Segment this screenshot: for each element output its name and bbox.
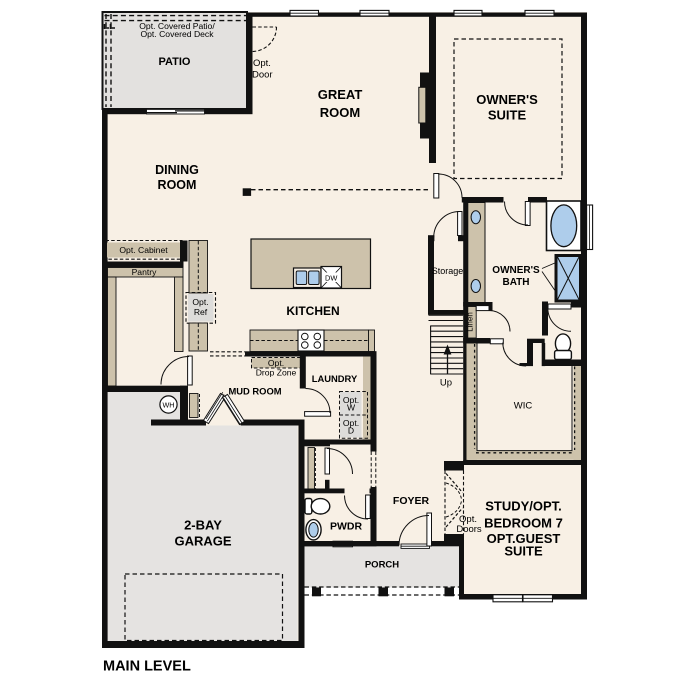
svg-text:BEDROOM 7: BEDROOM 7 (484, 516, 563, 531)
svg-text:D: D (348, 426, 354, 436)
svg-text:BATH: BATH (502, 277, 529, 288)
svg-text:SUITE: SUITE (504, 544, 543, 559)
svg-text:Storage: Storage (432, 266, 464, 276)
svg-text:Linen: Linen (465, 312, 474, 332)
svg-text:Opt.: Opt. (268, 358, 284, 368)
svg-text:ROOM: ROOM (158, 178, 197, 192)
svg-text:MAIN LEVEL: MAIN LEVEL (103, 659, 191, 675)
svg-text:GARAGE: GARAGE (174, 534, 231, 549)
svg-text:STUDY/OPT.: STUDY/OPT. (485, 499, 562, 514)
svg-text:DW: DW (325, 274, 337, 283)
svg-text:MUD ROOM: MUD ROOM (228, 386, 281, 397)
svg-text:Pantry: Pantry (132, 267, 158, 277)
svg-text:Up: Up (440, 378, 452, 389)
svg-text:OWNER'S: OWNER'S (476, 92, 538, 107)
svg-text:Opt.: Opt. (192, 297, 208, 307)
svg-text:Doors: Doors (456, 524, 482, 535)
svg-text:2-BAY: 2-BAY (184, 518, 222, 533)
svg-text:PATIO: PATIO (159, 56, 191, 68)
svg-text:Opt. Cabinet: Opt. Cabinet (119, 245, 168, 255)
svg-text:Ref: Ref (194, 307, 208, 317)
svg-text:PORCH: PORCH (365, 560, 399, 571)
svg-text:PWDR: PWDR (330, 521, 362, 533)
svg-text:DINING: DINING (155, 163, 199, 177)
svg-text:SUITE: SUITE (488, 108, 527, 123)
svg-text:Drop Zone: Drop Zone (256, 368, 297, 378)
svg-text:LAUNDRY: LAUNDRY (312, 373, 358, 384)
svg-text:GREAT: GREAT (318, 87, 363, 102)
svg-text:WIC: WIC (514, 401, 533, 412)
svg-text:ROOM: ROOM (320, 105, 360, 120)
svg-text:Opt. Covered Deck: Opt. Covered Deck (140, 29, 214, 39)
svg-text:FOYER: FOYER (393, 495, 430, 507)
svg-text:Opt.: Opt. (253, 58, 271, 69)
svg-text:W: W (347, 403, 356, 413)
svg-text:Door: Door (252, 70, 273, 81)
svg-text:KITCHEN: KITCHEN (286, 304, 339, 318)
svg-text:OWNER'S: OWNER'S (492, 265, 540, 276)
svg-text:WH: WH (163, 400, 175, 409)
